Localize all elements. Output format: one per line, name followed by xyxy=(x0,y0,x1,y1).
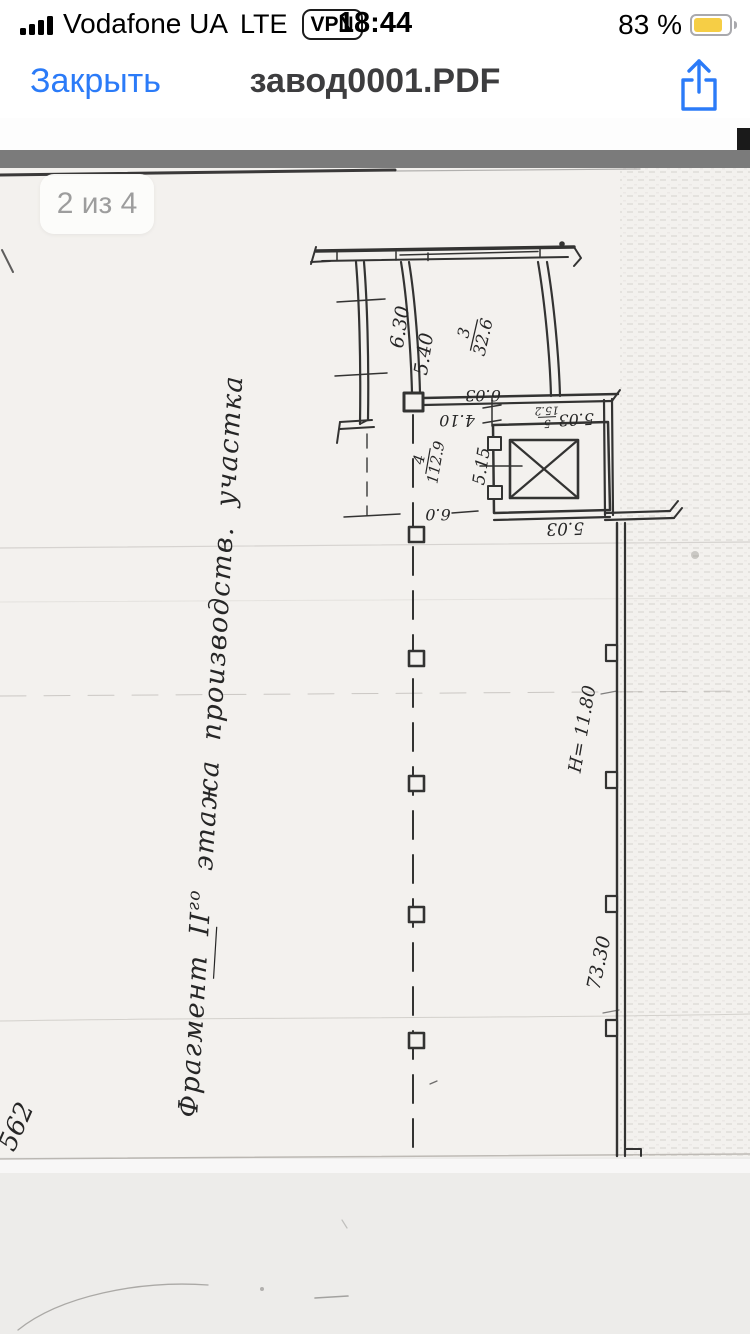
pdf-viewer-screen: Vodafone UA LTE VPN 18:44 83 % Закрыть з… xyxy=(0,0,750,1334)
battery-icon xyxy=(690,14,732,36)
floor-plan-drawing: 6.30 5.40 3 32.6 6.03 4.10 5.03 5 15.2 4 xyxy=(0,168,750,1334)
page-separator-band xyxy=(0,150,750,168)
scan-corner-mark xyxy=(737,128,750,150)
dim-5-03-top: 5.03 xyxy=(558,409,595,430)
dim-4-10: 4.10 xyxy=(439,411,476,430)
svg-text:5: 5 xyxy=(543,417,550,430)
share-button[interactable] xyxy=(676,56,722,114)
svg-text:15.2: 15.2 xyxy=(534,404,559,418)
dim-5-03-bottom: 5.03 xyxy=(546,517,585,538)
navigation-bar: Закрыть завод0001.PDF xyxy=(0,48,750,118)
paper-speck xyxy=(691,551,699,559)
document-title: завод0001.PDF xyxy=(0,62,750,101)
battery-percent-label: 83 % xyxy=(618,9,682,41)
dim-6-03: 6.03 xyxy=(465,386,501,405)
page-fold-lower-area xyxy=(0,1157,750,1334)
status-bar: Vodafone UA LTE VPN 18:44 83 % xyxy=(0,0,750,48)
bleed-through-texture xyxy=(620,168,750,1156)
pdf-page-canvas[interactable]: 6.30 5.40 3 32.6 6.03 4.10 5.03 5 15.2 4 xyxy=(0,168,750,1334)
share-icon xyxy=(676,56,722,114)
dim-6-0: 6.0 xyxy=(425,505,450,524)
viewer-gap xyxy=(0,118,750,150)
page-indicator: 2 из 4 xyxy=(40,174,154,234)
